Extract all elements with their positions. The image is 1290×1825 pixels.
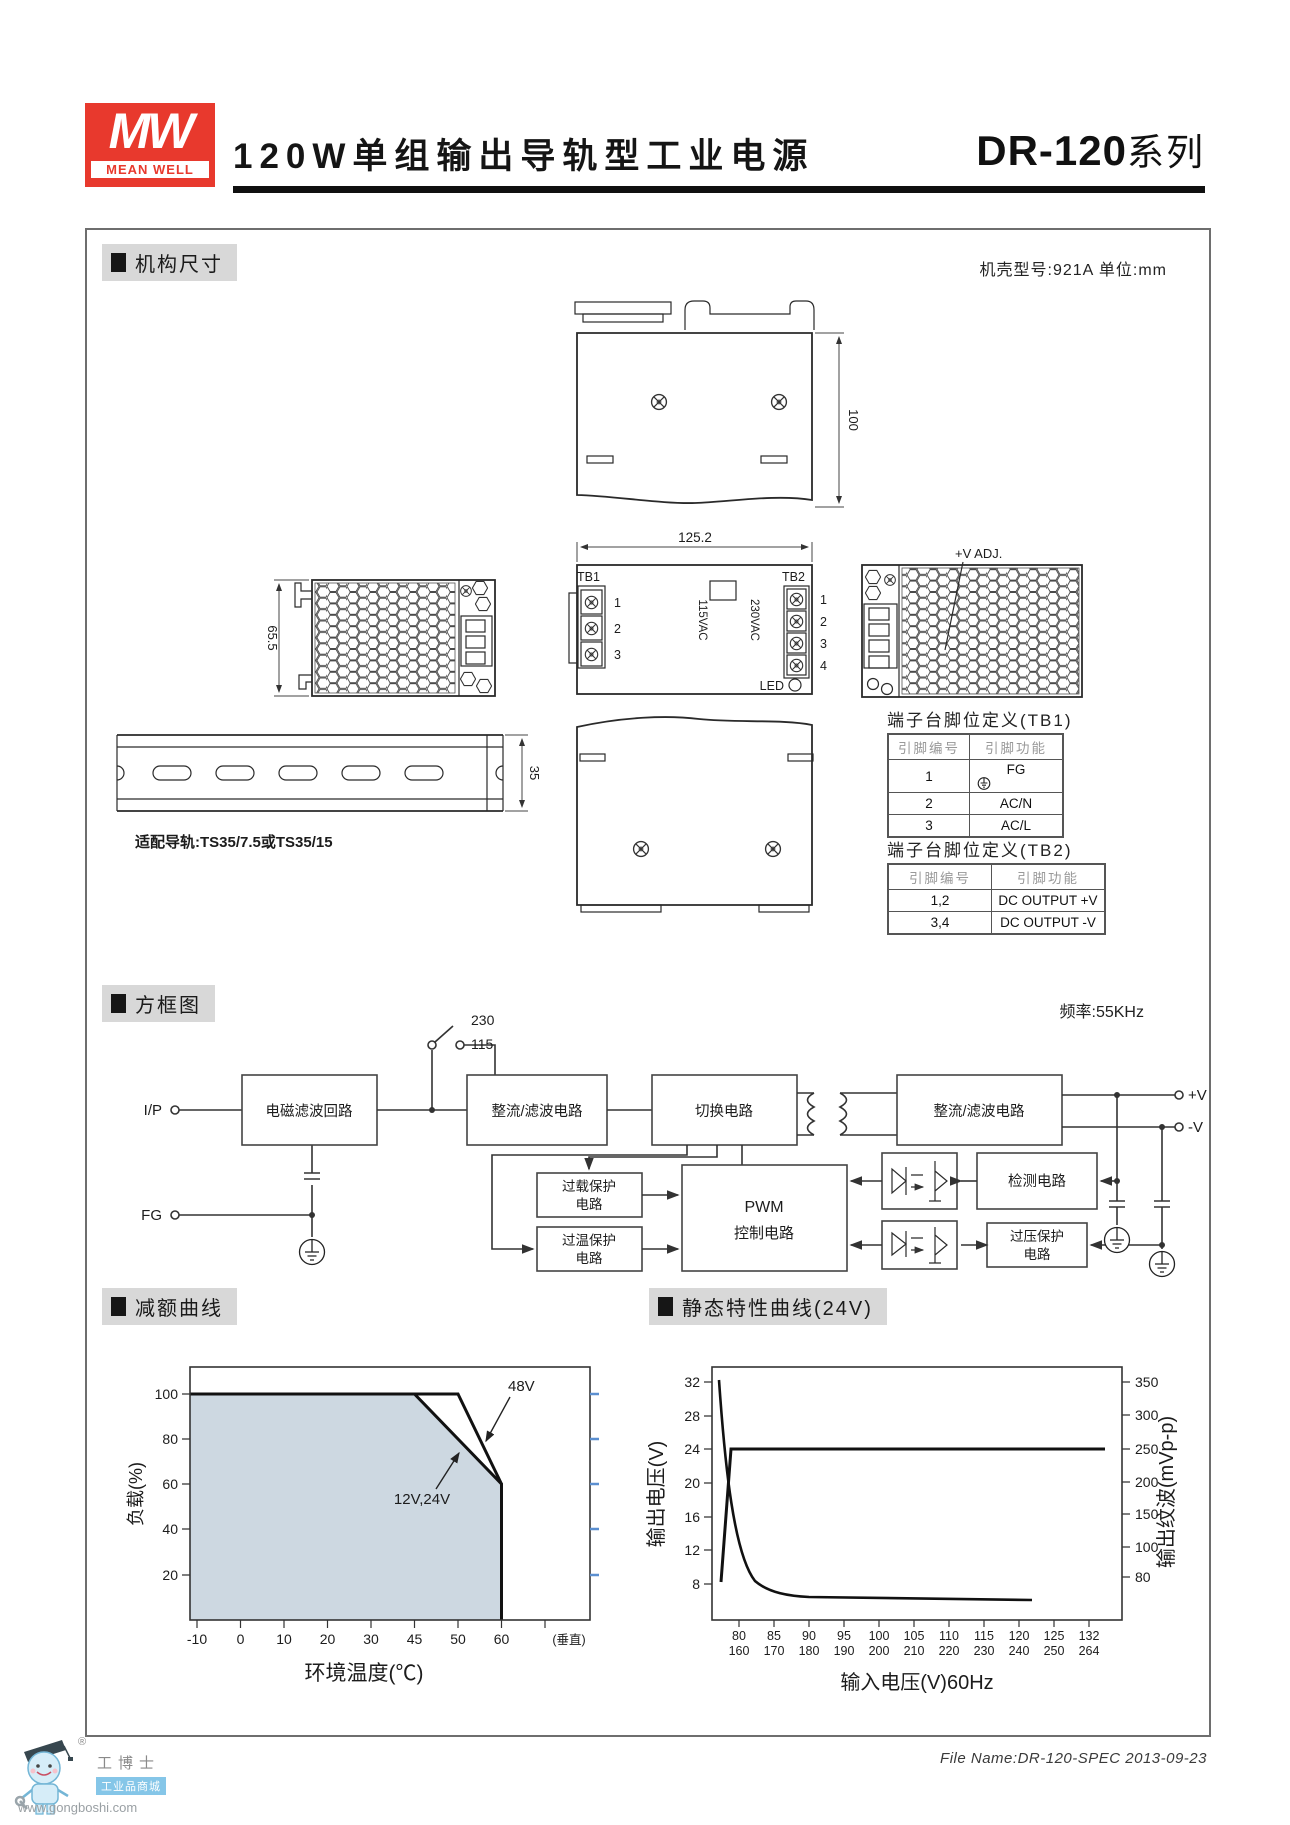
emi-filter-box: 电磁滤波回路	[266, 1103, 353, 1120]
series-title: DR-120系列	[976, 122, 1205, 176]
svg-text:12: 12	[684, 1542, 700, 1558]
tb2-col-pin: 引脚编号	[888, 864, 992, 890]
transformer-secondary	[840, 1093, 847, 1135]
tb2-r2-pin: 3,4	[888, 912, 992, 935]
svg-text:20: 20	[162, 1567, 178, 1583]
top-view: 100	[575, 301, 861, 507]
svg-text:105: 105	[904, 1629, 925, 1643]
tb1-r2-fn: AC/N	[970, 793, 1064, 815]
table-row: 2 AC/N	[888, 793, 1063, 815]
svg-text:10: 10	[276, 1631, 292, 1647]
table-row: 3,4 DC OUTPUT -V	[888, 912, 1105, 935]
svg-text:200: 200	[869, 1644, 890, 1658]
left-side-view: 65.5	[265, 580, 495, 696]
label-12v24v: 12V,24V	[394, 1491, 450, 1508]
svg-text:110: 110	[939, 1629, 959, 1643]
svg-text:80: 80	[1135, 1569, 1151, 1585]
pwm-box-l1: PWM	[744, 1199, 783, 1216]
svg-text:132: 132	[1079, 1629, 1100, 1643]
overtemp-box-l1: 过温保护	[562, 1233, 616, 1248]
tb1-r3-pin: 3	[888, 815, 970, 838]
page-title: 120W单组输出导轨型工业电源	[233, 128, 814, 179]
left-tick-labels: 32 28 24 20 16 12 8	[684, 1374, 700, 1592]
tb2-r1-fn: DC OUTPUT +V	[992, 890, 1106, 912]
section-derating-label: 减额曲线	[135, 1292, 223, 1321]
right-side-view: +V ADJ.	[862, 546, 1082, 697]
derating-shaded-area	[190, 1394, 502, 1620]
tb1-col-pin: 引脚编号	[888, 734, 970, 760]
tb2-r2-fn: DC OUTPUT -V	[992, 912, 1106, 935]
output-filter-grounds	[1105, 1095, 1175, 1277]
tb1-pin-1: 1	[614, 596, 621, 610]
earth-ground-icon	[977, 777, 991, 790]
svg-text:90: 90	[802, 1629, 816, 1643]
tb1-r1-pin: 1	[888, 760, 970, 793]
tb2-pin-3: 3	[820, 637, 827, 651]
svg-text:250: 250	[1044, 1644, 1065, 1658]
table-row: 1 FG	[888, 760, 1063, 793]
right-axis-title: 输出纹波(mVp-p)	[1155, 1416, 1178, 1568]
tb1-r1-fn: FG	[970, 760, 1064, 793]
out-pos-label: +V	[1188, 1087, 1207, 1104]
out-neg-label: -V	[1188, 1119, 1203, 1136]
static-curve-chart: 32 28 24 20 16 12 8 350 300 250 200 150 …	[617, 1342, 1197, 1707]
fg-label: FG	[141, 1207, 162, 1224]
ovp-box-l1: 过压保护	[1010, 1229, 1064, 1244]
x-axis-title: 环境温度(℃)	[305, 1662, 424, 1685]
blue-right-ticks	[590, 1394, 599, 1575]
header-divider	[233, 186, 1205, 193]
series-code: DR-120	[976, 127, 1127, 175]
svg-text:160: 160	[729, 1644, 750, 1658]
left-axis-title: 输出电压(V)	[645, 1441, 668, 1548]
overtemp-box-l2: 电路	[576, 1251, 604, 1266]
y-tick-labels: 100 80 60 40 20	[155, 1386, 179, 1583]
svg-text:264: 264	[1079, 1644, 1100, 1658]
overload-box-l1: 过载保护	[562, 1179, 616, 1194]
svg-text:30: 30	[363, 1631, 379, 1647]
section-static-label: 静态特性曲线(24V)	[682, 1292, 873, 1321]
tb2-col-fn: 引脚功能	[992, 864, 1106, 890]
x-tick-labels: -10 0 10 20 30 45 50 60 (垂直)	[187, 1631, 586, 1647]
registered-mark: ®	[78, 1736, 86, 1748]
svg-text:190: 190	[834, 1644, 855, 1658]
svg-text:8: 8	[692, 1576, 700, 1592]
svg-text:80: 80	[162, 1431, 178, 1447]
optocoupler-1	[882, 1153, 957, 1209]
x-axis-title: 输入电压(V)60Hz	[840, 1671, 993, 1694]
svg-text:220: 220	[939, 1644, 960, 1658]
width-dimension: 125.2	[577, 530, 812, 562]
svg-text:20: 20	[684, 1475, 700, 1491]
table-row: 3 AC/L	[888, 815, 1063, 838]
watermark-subtitle: 工业品商城	[96, 1777, 166, 1795]
x-end-note: (垂直)	[552, 1633, 585, 1647]
tb1-r3-fn: AC/L	[970, 815, 1064, 838]
tb2-pin-2: 2	[820, 615, 827, 629]
content-frame: 机构尺寸 机壳型号:921A 单位:mm	[85, 228, 1211, 1737]
svg-text:16: 16	[684, 1509, 700, 1525]
svg-text:60: 60	[494, 1631, 510, 1647]
pwm-box-l2: 控制电路	[734, 1225, 794, 1242]
svg-text:210: 210	[904, 1644, 925, 1658]
din-rail: 35 适配导轨:TS35/7.5或TS35/15	[117, 735, 542, 851]
svg-text:50: 50	[450, 1631, 466, 1647]
y-axis-title: 负载(%)	[126, 1462, 146, 1526]
svg-text:45: 45	[407, 1631, 423, 1647]
vac115-label: 115VAC	[696, 599, 708, 640]
svg-text:120: 120	[1009, 1629, 1030, 1643]
section-static-curve: 静态特性曲线(24V)	[649, 1288, 887, 1325]
tb1-col-fn: 引脚功能	[970, 734, 1064, 760]
svg-text:100: 100	[869, 1629, 890, 1643]
svg-text:85: 85	[767, 1629, 781, 1643]
main-signal-path: 电磁滤波回路 整流/滤波电路 切换电路 整流/滤波电路 +V -V	[242, 1075, 1207, 1145]
tb2-label: TB2	[782, 570, 805, 584]
svg-text:24: 24	[684, 1441, 700, 1457]
ip-label: I/P	[144, 1102, 162, 1119]
logo-mw-text: MW	[109, 103, 192, 159]
led-label: LED	[760, 679, 784, 693]
watermark-url: www.gongboshi.com	[18, 1800, 137, 1815]
tb2-pin-4: 4	[820, 659, 827, 673]
dim-depth-label: 65.5	[265, 625, 280, 650]
svg-text:40: 40	[162, 1521, 178, 1537]
switch-115-label: 115	[471, 1036, 494, 1052]
tb2-r1-pin: 1,2	[888, 890, 992, 912]
svg-text:230: 230	[974, 1644, 995, 1658]
rectifier2-box: 整流/滤波电路	[933, 1103, 1025, 1120]
tb2-table-title: 端子台脚位定义(TB2)	[887, 836, 1073, 861]
tb2-pin-1: 1	[820, 593, 827, 607]
x-tick-labels-115: 80 85 90 95 100 105 110 115 120 125 132	[732, 1629, 1099, 1643]
front-view: TB1 1 2 3 115VAC 230VAC TB2 1 2 3 4 LED	[569, 565, 827, 694]
rectifier1-box: 整流/滤波电路	[491, 1103, 583, 1120]
table-row: 1,2 DC OUTPUT +V	[888, 890, 1105, 912]
dim-width-label: 125.2	[678, 530, 712, 545]
rail-note: 适配导轨:TS35/7.5或TS35/15	[135, 833, 333, 851]
meanwell-logo: MW MEAN WELL	[85, 103, 215, 187]
section-bullet-icon	[658, 1297, 673, 1316]
svg-text:125: 125	[1044, 1629, 1065, 1643]
tb1-r2-pin: 2	[888, 793, 970, 815]
svg-text:28: 28	[684, 1408, 700, 1424]
svg-text:100: 100	[155, 1386, 179, 1402]
dim-height-label: 100	[846, 409, 861, 431]
svg-text:180: 180	[799, 1644, 820, 1658]
file-name-note: File Name:DR-120-SPEC 2013-09-23	[940, 1750, 1207, 1767]
optocoupler-2	[882, 1221, 957, 1269]
watermark-name: 工博士	[97, 1752, 160, 1773]
tb2-pin-table: 引脚编号 引脚功能 1,2 DC OUTPUT +V 3,4 DC OUTPUT…	[887, 863, 1106, 935]
svg-text:115: 115	[974, 1629, 994, 1643]
tb1-label: TB1	[577, 570, 600, 584]
svg-text:32: 32	[684, 1374, 700, 1390]
svg-text:60: 60	[162, 1476, 178, 1492]
svg-text:20: 20	[320, 1631, 336, 1647]
bottom-view	[577, 717, 813, 912]
transformer-primary	[808, 1093, 815, 1135]
svg-text:-10: -10	[187, 1631, 207, 1647]
x-tick-labels-230: 160 170 180 190 200 210 220 230 240 250 …	[729, 1644, 1100, 1658]
detect-box: 检测电路	[1008, 1173, 1066, 1190]
tb1-pin-table: 引脚编号 引脚功能 1 FG 2 AC/N 3 AC/L	[887, 733, 1064, 838]
dim-rail-label: 35	[527, 766, 542, 780]
section-derating: 减额曲线	[102, 1288, 237, 1325]
block-diagram: I/P FG 230 115 电磁滤波回路 整流/滤波电路	[87, 1005, 1209, 1295]
feedback-and-protection: 过载保护 电路 过温保护 电路 PWM 控制电路 检测电路	[492, 1145, 1165, 1271]
switch-230-label: 230	[471, 1012, 495, 1028]
tb1-pin-2: 2	[614, 622, 621, 636]
series-suffix: 系列	[1127, 122, 1205, 176]
tb1-table-title: 端子台脚位定义(TB1)	[887, 706, 1073, 731]
ovp-box-l2: 电路	[1024, 1247, 1052, 1262]
derating-chart: 100 80 60 40 20 -10 0 10 20 30 45 50 60 …	[112, 1342, 612, 1707]
svg-text:240: 240	[1009, 1644, 1030, 1658]
svg-text:350: 350	[1135, 1374, 1159, 1390]
svg-text:170: 170	[764, 1644, 785, 1658]
svg-text:95: 95	[837, 1629, 851, 1643]
logo-meanwell-text: MEAN WELL	[89, 159, 211, 180]
vac230-label: 230VAC	[748, 599, 760, 641]
label-48v: 48V	[508, 1378, 535, 1395]
tb1-pin-3: 3	[614, 648, 621, 662]
vadj-label: +V ADJ.	[955, 546, 1002, 561]
section-bullet-icon	[111, 1297, 126, 1316]
switching-box: 切换电路	[695, 1103, 753, 1120]
svg-text:0: 0	[237, 1631, 245, 1647]
overload-box-l2: 电路	[576, 1197, 604, 1212]
svg-text:80: 80	[732, 1629, 746, 1643]
